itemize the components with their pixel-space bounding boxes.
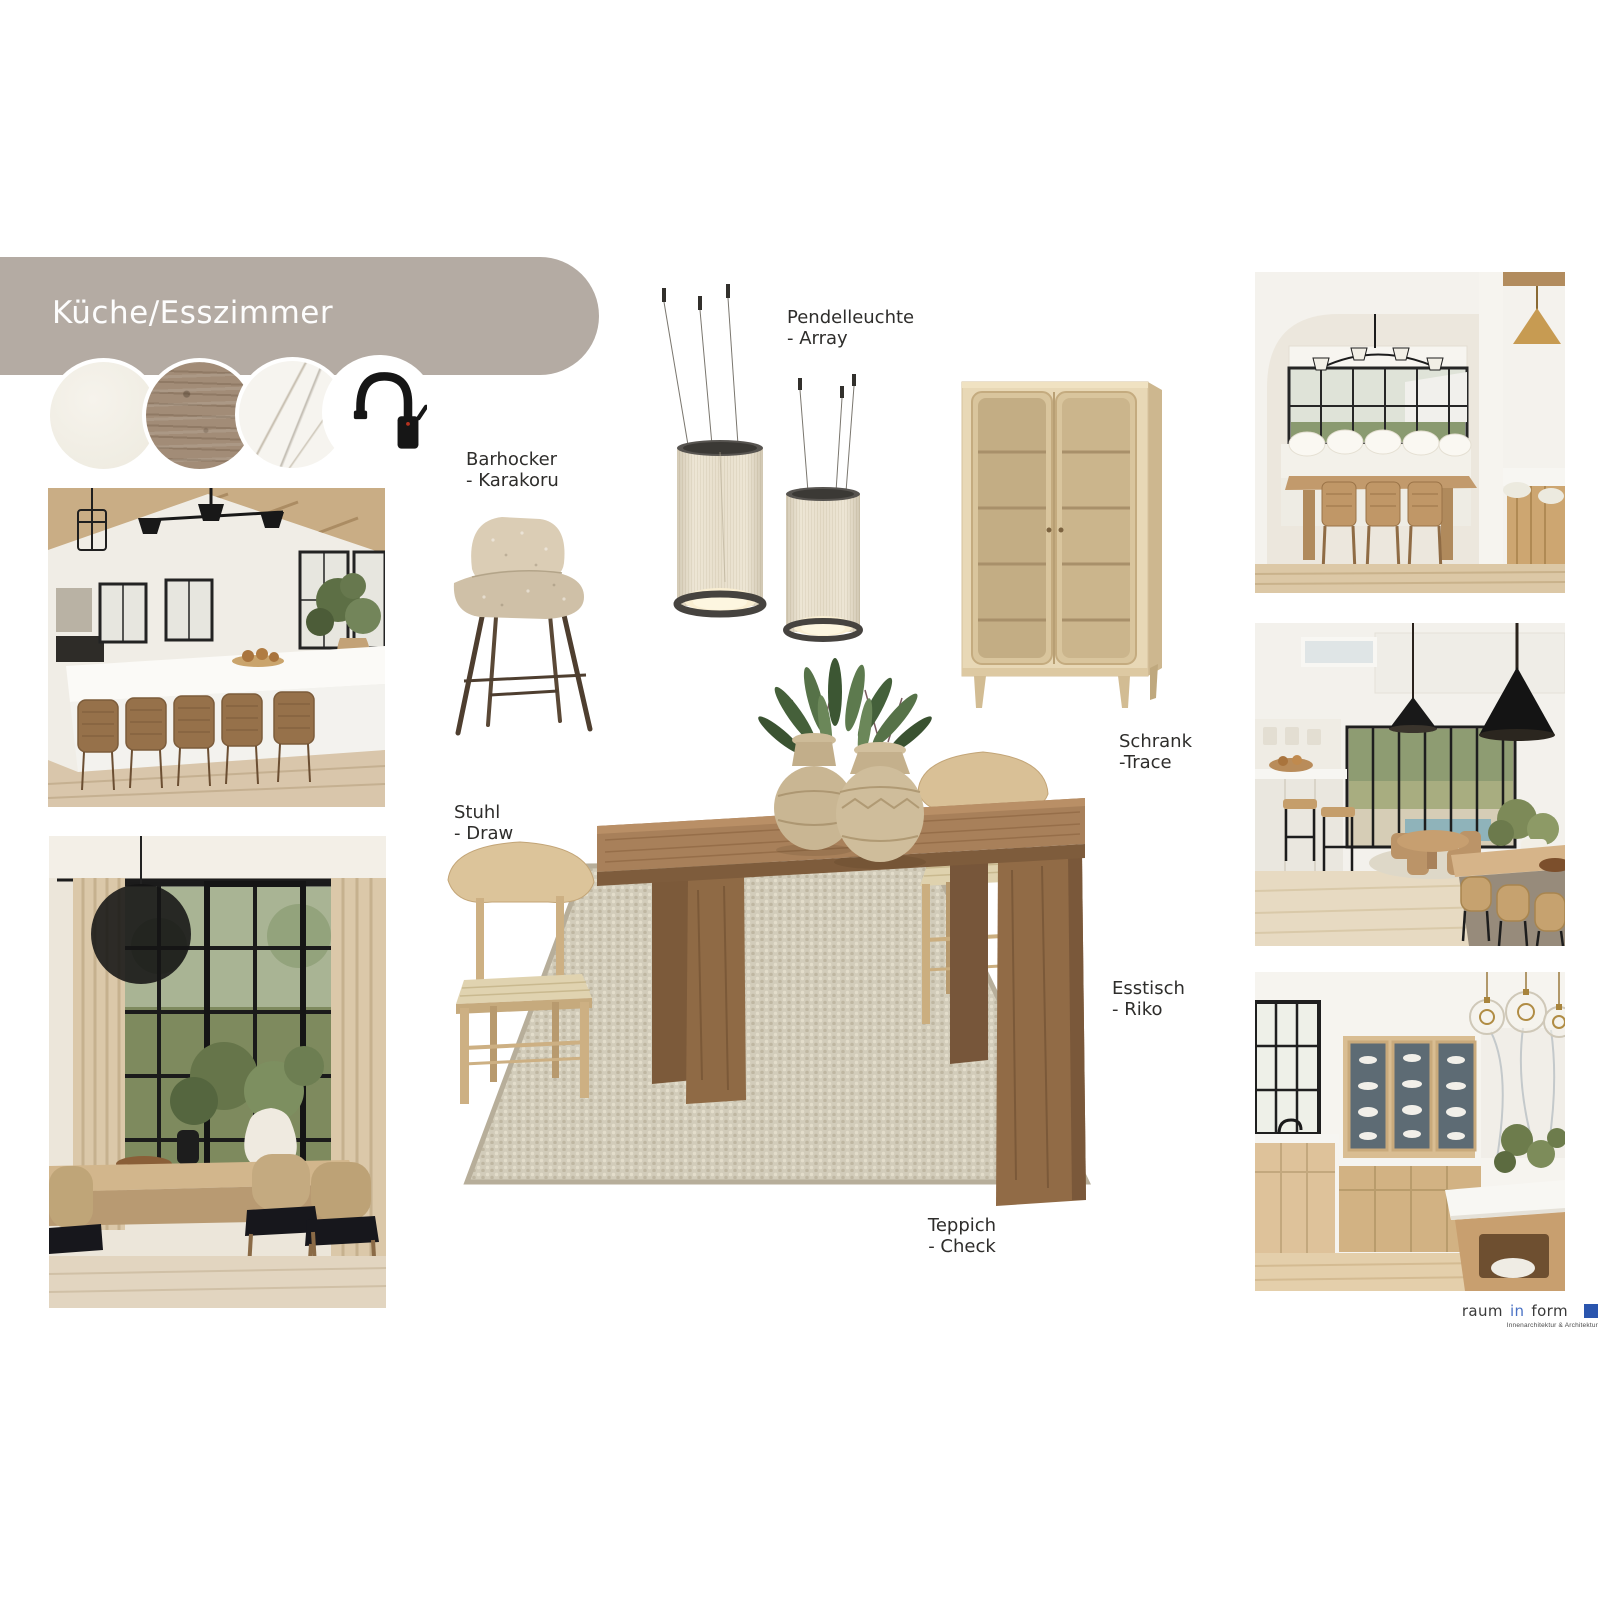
logo-square-icon [1584,1304,1598,1318]
logo-raum-in-form: raum in form Innenarchitektur & Architek… [1430,1302,1598,1329]
label-barhocker: Barhocker - Karakoru [466,449,559,491]
logo-wordmark: raum in form [1430,1302,1598,1320]
product-variant: -Trace [1119,752,1192,773]
photo-oak-kitchen-right [1255,972,1565,1291]
product-dining-composition [440,640,1110,1210]
product-name: Barhocker [466,449,559,470]
mesh-orb-pendant-icon [91,884,191,984]
photo-breakfast-nook-right [1255,272,1565,593]
label-esstisch: Esstisch - Riko [1112,978,1185,1020]
logo-subtitle: Innenarchitektur & Architektur [1430,1322,1598,1329]
label-schrank: Schrank -Trace [1119,731,1192,773]
page-title: Küche/Esszimmer [0,257,599,331]
logo-word-in: in [1510,1302,1524,1320]
product-variant: - Karakoru [466,470,559,491]
product-name: Esstisch [1112,978,1185,999]
logo-word-raum: raum [1462,1302,1503,1320]
black-faucet-icon [332,365,427,460]
product-name: Teppich [880,1215,1044,1236]
moodboard-kitchen-dining: Küche/Esszimmer [0,0,1600,1600]
product-variant: - Check [880,1236,1044,1257]
photo-kitchen-island-left [48,488,385,807]
product-name: Stuhl [454,802,513,823]
photo-dining-room-left [49,836,386,1308]
photo-open-kitchen-right [1255,623,1565,946]
product-name: Pendelleuchte [787,307,914,328]
pendant-large [662,284,763,614]
label-teppich: Teppich - Check [880,1215,1044,1257]
oak-hutch-icon [1343,1036,1475,1158]
label-stuhl: Stuhl - Draw [454,802,513,844]
product-variant: - Array [787,328,914,349]
swatch-faucet-black-icon [322,355,437,470]
logo-word-form: form [1531,1302,1568,1320]
pendant-small [786,374,860,639]
island-icon [1445,1180,1565,1291]
product-variant: - Riko [1112,999,1185,1020]
product-name: Schrank [1119,731,1192,752]
label-pendelleuchte: Pendelleuchte - Array [787,307,914,349]
product-variant: - Draw [454,823,513,844]
